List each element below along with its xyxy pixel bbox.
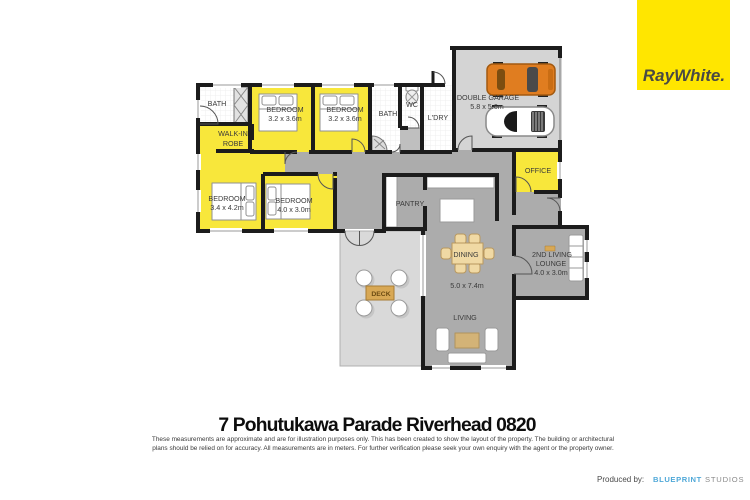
- svg-text:LIVING: LIVING: [453, 313, 477, 322]
- svg-text:4.0 x 3.0m: 4.0 x 3.0m: [534, 268, 568, 277]
- svg-text:OFFICE: OFFICE: [525, 166, 552, 175]
- svg-text:BEDROOM: BEDROOM: [326, 105, 363, 114]
- svg-text:BEDROOM: BEDROOM: [208, 194, 245, 203]
- svg-text:BEDROOM: BEDROOM: [275, 196, 312, 205]
- svg-text:3.4 x 4.2m: 3.4 x 4.2m: [210, 203, 244, 212]
- svg-text:5.0 x 7.4m: 5.0 x 7.4m: [450, 281, 484, 290]
- svg-text:These measurements are approxi: These measurements are approximate and a…: [152, 436, 614, 443]
- svg-text:LOUNGE: LOUNGE: [536, 259, 567, 268]
- svg-text:BEDROOM: BEDROOM: [266, 105, 303, 114]
- svg-text:5.8 x 5.6m: 5.8 x 5.6m: [470, 102, 504, 111]
- svg-text:2ND LIVING: 2ND LIVING: [532, 250, 572, 259]
- svg-text:RayWhite.: RayWhite.: [643, 66, 725, 85]
- svg-text:BLUEPRINT: BLUEPRINT: [653, 475, 702, 484]
- svg-text:plans should be relied on for: plans should be relied on for accuracy. …: [152, 445, 614, 452]
- svg-text:DOUBLE GARAGE: DOUBLE GARAGE: [457, 93, 520, 102]
- svg-text:WALK-IN: WALK-IN: [218, 129, 248, 138]
- svg-text:DINING: DINING: [453, 250, 479, 259]
- svg-text:WC: WC: [406, 100, 418, 109]
- svg-text:STUDIOS: STUDIOS: [705, 475, 744, 484]
- svg-text:ROBE: ROBE: [223, 139, 244, 148]
- svg-text:4.0 x 3.0m: 4.0 x 3.0m: [277, 205, 311, 214]
- svg-text:3.2 x 3.6m: 3.2 x 3.6m: [328, 114, 362, 123]
- svg-text:BATH: BATH: [379, 109, 398, 118]
- svg-text:L'DRY: L'DRY: [428, 113, 449, 122]
- svg-text:DECK: DECK: [371, 291, 390, 298]
- svg-text:BATH: BATH: [208, 99, 227, 108]
- svg-text:Produced by:: Produced by:: [597, 475, 644, 484]
- svg-text:3.2 x 3.6m: 3.2 x 3.6m: [268, 114, 302, 123]
- svg-text:PANTRY: PANTRY: [396, 199, 425, 208]
- svg-text:7 Pohutukawa Parade Riverhead: 7 Pohutukawa Parade Riverhead 0820: [218, 415, 535, 436]
